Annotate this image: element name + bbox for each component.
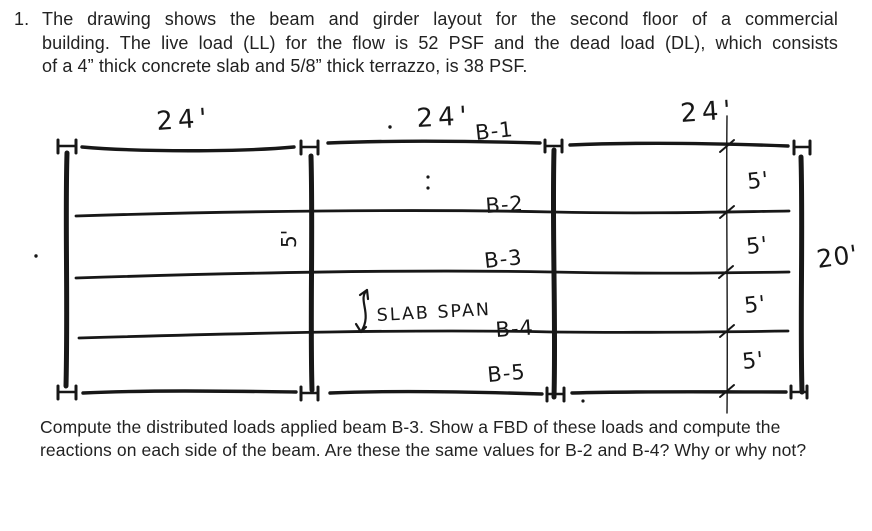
b5-segment-1 bbox=[83, 391, 296, 393]
beam-line-b5 bbox=[83, 391, 786, 394]
span-dim-label-3: 24' bbox=[679, 95, 736, 129]
total-depth-dim-label: 20' bbox=[815, 239, 860, 274]
stray-dot bbox=[581, 399, 584, 402]
beam-line-b3 bbox=[76, 271, 789, 278]
beam-label-b1: B-1 bbox=[474, 117, 515, 145]
beam-label-b3: B-3 bbox=[483, 245, 524, 273]
beam-label-b2: B-2 bbox=[485, 191, 525, 218]
support-marker-b1-mid-left bbox=[301, 141, 318, 154]
span-dim-label-1: 24' bbox=[155, 103, 212, 137]
bay-dim-label-2: 5' bbox=[745, 233, 770, 260]
question-text: Compute the distributed loads applied be… bbox=[40, 416, 846, 462]
bay-dim-label-4: 5' bbox=[741, 348, 766, 375]
beam-line-b1 bbox=[82, 141, 788, 151]
bay-dim-label-1: 5' bbox=[746, 168, 771, 195]
girder-line-right bbox=[801, 157, 802, 392]
stray-dot bbox=[426, 175, 429, 178]
girder-bay-dim-label: 5' bbox=[277, 230, 301, 248]
beam-label-b5: B-5 bbox=[486, 360, 526, 387]
stray-dot bbox=[388, 125, 391, 128]
slab-span-label: SLAB SPAN bbox=[376, 300, 491, 326]
question-line-1: Compute the distributed loads applied be… bbox=[40, 416, 846, 439]
girder-line-left bbox=[66, 153, 67, 386]
stray-dot bbox=[34, 254, 37, 257]
stray-dot bbox=[426, 186, 429, 189]
girder-line-mid-right bbox=[553, 150, 554, 397]
beam-label-b4: B-4 bbox=[495, 315, 535, 342]
slab-span-arrow bbox=[356, 290, 368, 332]
question-line-2: reactions on each side of the beam. Are … bbox=[40, 439, 846, 462]
beam-line-b2 bbox=[76, 211, 789, 216]
b1-segment-3 bbox=[570, 143, 788, 146]
bay-dimension-line bbox=[719, 116, 734, 413]
worksheet-page: 1. The drawing shows the beam and girder… bbox=[0, 0, 872, 531]
dimension-line bbox=[727, 116, 728, 413]
bay-dim-label-3: 5' bbox=[743, 292, 768, 319]
slab-arrow-curve bbox=[361, 290, 367, 332]
b1-segment-1 bbox=[82, 147, 294, 151]
span-dim-label-2: 24' bbox=[416, 101, 473, 134]
support-marker-b5-right bbox=[791, 386, 807, 398]
support-marker-b1-right bbox=[794, 141, 810, 154]
b5-segment-2 bbox=[330, 391, 542, 394]
b5-segment-3 bbox=[572, 392, 786, 393]
beam-line-b4 bbox=[79, 331, 788, 338]
